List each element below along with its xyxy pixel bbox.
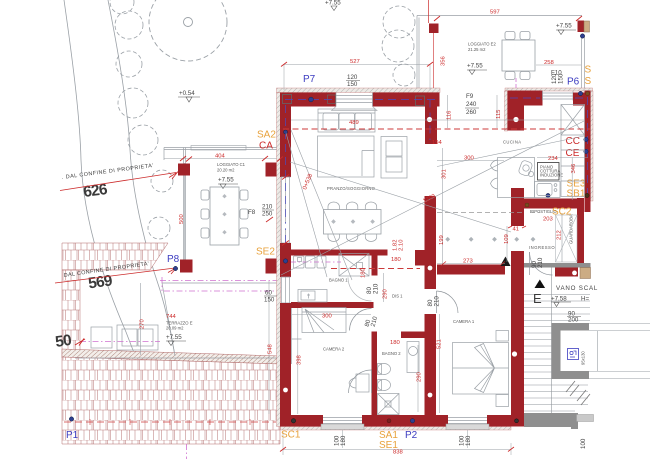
svg-text:301: 301: [442, 169, 448, 179]
svg-text:+7.55: +7.55: [218, 177, 234, 184]
svg-text:BAGNO 2: BAGNO 2: [382, 351, 401, 356]
svg-text:300: 300: [322, 314, 333, 320]
svg-text:CAMERA 1: CAMERA 1: [453, 319, 475, 324]
svg-text:20.09 m2: 20.09 m2: [166, 326, 184, 331]
svg-text:210: 210: [434, 296, 441, 307]
svg-text:356: 356: [441, 55, 447, 66]
svg-text:LOGGIATO C1: LOGGIATO C1: [217, 162, 246, 167]
svg-text:F8: F8: [248, 209, 256, 216]
svg-text:210: 210: [373, 283, 380, 294]
svg-text:346: 346: [571, 163, 577, 174]
svg-text:100: 100: [580, 438, 587, 449]
svg-text:234: 234: [548, 156, 559, 162]
svg-text:GUARDAROBA: GUARDAROBA: [569, 214, 574, 244]
svg-text:150: 150: [264, 297, 275, 304]
svg-text:180: 180: [340, 435, 347, 446]
svg-text:180: 180: [390, 340, 401, 346]
svg-text:300: 300: [464, 156, 475, 162]
svg-text:21.25 m2: 21.25 m2: [468, 47, 486, 52]
svg-text:CAMERA 2: CAMERA 2: [323, 347, 345, 352]
svg-text:+7.55: +7.55: [325, 0, 341, 7]
svg-text:199: 199: [439, 235, 445, 245]
svg-text:LOGGIATO E2: LOGGIATO E2: [468, 42, 496, 47]
svg-text:INGRESSO: INGRESSO: [529, 245, 555, 250]
svg-text:P1: P1: [66, 430, 79, 441]
svg-text:210: 210: [537, 257, 544, 268]
svg-text:212: 212: [557, 230, 563, 240]
svg-text:SE2: SE2: [256, 247, 275, 258]
svg-text:744: 744: [166, 314, 177, 320]
svg-text:95x130: 95x130: [581, 351, 586, 365]
svg-text:180: 180: [391, 257, 402, 263]
svg-text:260: 260: [466, 109, 477, 116]
svg-text:489: 489: [349, 120, 359, 126]
svg-text:150: 150: [558, 73, 565, 84]
svg-text:SA2: SA2: [257, 130, 276, 141]
svg-text:500: 500: [179, 213, 185, 224]
svg-text:INDUZIONE: INDUZIONE: [540, 173, 563, 178]
svg-text:203: 203: [543, 217, 554, 223]
svg-text:273: 273: [463, 259, 474, 265]
svg-text:150: 150: [347, 81, 358, 88]
svg-text:F9: F9: [466, 93, 474, 100]
svg-text:BAGNO 1: BAGNO 1: [329, 278, 348, 283]
svg-text:20.20 m2: 20.20 m2: [217, 168, 235, 173]
svg-text:116: 116: [447, 110, 453, 120]
svg-text:S: S: [585, 65, 592, 76]
svg-text:569: 569: [87, 272, 114, 292]
svg-text:SE1: SE1: [379, 440, 398, 451]
svg-text:DIS 1: DIS 1: [392, 294, 403, 299]
svg-text:2.10: 2.10: [399, 239, 405, 251]
svg-text:CUCINA: CUCINA: [503, 140, 521, 145]
svg-text:S: S: [585, 76, 592, 87]
svg-text:398: 398: [297, 354, 303, 365]
svg-text:+7.55: +7.55: [166, 334, 182, 341]
svg-text:+7.55: +7.55: [556, 23, 572, 30]
svg-text:404: 404: [215, 154, 226, 160]
svg-text:CC: CC: [566, 136, 580, 147]
svg-text:194: 194: [432, 140, 443, 146]
svg-text:109: 109: [504, 234, 510, 244]
svg-text:250: 250: [262, 211, 273, 218]
svg-text:H=: H=: [581, 296, 589, 303]
svg-text:200: 200: [568, 317, 579, 324]
svg-text:SC1: SC1: [281, 430, 301, 441]
svg-text:120: 120: [347, 74, 358, 81]
svg-text:SC2: SC2: [552, 207, 572, 218]
svg-text:P6: P6: [567, 77, 580, 88]
svg-text:270: 270: [140, 318, 146, 329]
svg-text:548: 548: [268, 343, 274, 354]
svg-text:180: 180: [361, 267, 367, 278]
svg-text:258: 258: [544, 60, 555, 66]
svg-text:180: 180: [465, 435, 472, 446]
svg-text:290: 290: [383, 288, 389, 299]
svg-text:P8: P8: [167, 254, 180, 265]
svg-text:+7.58: +7.58: [551, 296, 567, 303]
svg-text:+7.55: +7.55: [467, 63, 483, 70]
svg-text:240: 240: [466, 101, 477, 108]
svg-text:60: 60: [265, 290, 272, 297]
svg-text:597: 597: [490, 10, 500, 16]
svg-text:290: 290: [417, 371, 423, 382]
svg-text:521: 521: [437, 339, 443, 349]
svg-text:41: 41: [513, 227, 520, 233]
svg-text:210: 210: [262, 204, 273, 211]
svg-text:50: 50: [54, 332, 72, 351]
svg-text:P2: P2: [405, 430, 418, 441]
svg-text:115: 115: [496, 109, 502, 119]
svg-text:VANO SCAL: VANO SCAL: [556, 285, 598, 292]
svg-text:527: 527: [350, 59, 360, 65]
svg-text:P7: P7: [303, 74, 316, 85]
svg-text:SB1: SB1: [567, 189, 586, 200]
svg-text:CA: CA: [259, 141, 273, 152]
svg-text:E: E: [533, 291, 542, 306]
svg-text:+0.54: +0.54: [179, 90, 195, 97]
